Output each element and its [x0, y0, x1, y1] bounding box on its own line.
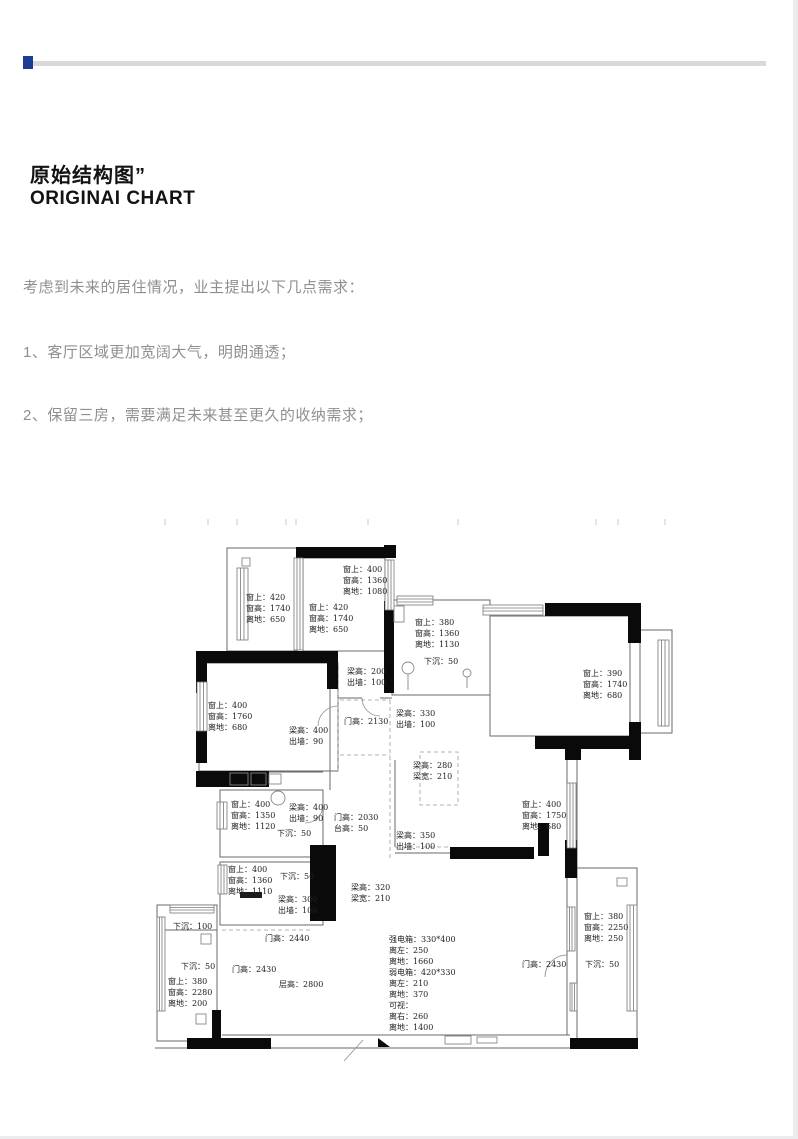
plan-annotation-line: 梁高：200 — [347, 666, 386, 677]
plan-annotation-line: 离地：1080 — [343, 586, 387, 597]
plan-annotation: 梁高：330出墙：100 — [396, 708, 435, 730]
plan-annotation-line: 梁高：400 — [289, 802, 328, 813]
plan-annotation-line: 离地：680 — [583, 690, 627, 701]
plan-annotation: 窗上：390窗高：1740离地：680 — [583, 668, 627, 701]
intro-lead-text: 考虑到未来的居住情况，业主提出以下几点需求： — [23, 276, 364, 297]
plan-annotation-line: 窗上：390 — [583, 668, 627, 679]
plan-annotation-line: 下沉：50 — [277, 828, 311, 839]
plan-annotation: 门高：2430 — [522, 959, 566, 970]
plan-annotation: 窗上：400窗高：1760离地：680 — [208, 700, 252, 733]
plan-annotation-line: 门高：2430 — [232, 964, 276, 975]
plan-annotation-line: 窗高：1360 — [415, 628, 459, 639]
accent-square — [23, 56, 33, 69]
plan-annotation: 下沉：100 — [173, 921, 212, 932]
plan-annotation-line: 出墙：90 — [289, 813, 328, 824]
plan-annotation-line: 窗高：1740 — [309, 613, 353, 624]
requirement-item-2: 2、保留三房，需要满足未来甚至更久的收纳需求； — [23, 404, 373, 425]
plan-annotation-line: 窗上：400 — [522, 799, 566, 810]
plan-annotation: 梁高：280梁宽：210 — [413, 760, 452, 782]
plan-annotation-line: 出墙：90 — [289, 736, 328, 747]
plan-annotation-line: 离右：260 — [389, 1011, 456, 1022]
plan-annotation-line: 下沉：50 — [585, 959, 619, 970]
plan-annotation-line: 窗上：420 — [309, 602, 353, 613]
plan-annotation-line: 窗高：1360 — [228, 875, 272, 886]
plan-annotation-line: 下沉：50 — [280, 871, 314, 882]
plan-annotation-line: 离地：650 — [309, 624, 353, 635]
plan-annotation-line: 离地：1120 — [231, 821, 275, 832]
plan-annotation-line: 窗高：2280 — [168, 987, 212, 998]
plan-annotation-line: 梁高：320 — [351, 882, 390, 893]
plan-annotation: 梁高：400出墙：90 — [289, 802, 328, 824]
header-divider-line — [33, 61, 766, 66]
plan-annotation-line: 梁高：280 — [413, 760, 452, 771]
plan-annotation-line: 离地：1130 — [415, 639, 459, 650]
plan-annotation: 窗上：420窗高：1740离地：650 — [246, 592, 290, 625]
plan-annotation-line: 窗高：1740 — [583, 679, 627, 690]
plan-annotation-line: 离地：680 — [522, 821, 566, 832]
plan-annotation: 梁高：320梁宽：210 — [351, 882, 390, 904]
plan-annotation-line: 窗上：380 — [584, 911, 628, 922]
plan-annotation: 门高：2440 — [265, 933, 309, 944]
plan-annotation-line: 门高：2440 — [265, 933, 309, 944]
plan-annotation: 门高：2130 — [344, 716, 388, 727]
plan-annotation-line: 出墙：100 — [396, 719, 435, 730]
plan-annotation-line: 离左：250 — [389, 945, 456, 956]
plan-annotation-line: 梁高：400 — [289, 725, 328, 736]
plan-annotation-line: 门高：2430 — [522, 959, 566, 970]
plan-annotation-line: 窗上：380 — [415, 617, 459, 628]
plan-annotation-line: 梁宽：210 — [413, 771, 452, 782]
plan-annotation-line: 下沉：50 — [424, 656, 458, 667]
plan-annotation-line: 窗上：400 — [343, 564, 387, 575]
plan-annotation-line: 离地：650 — [246, 614, 290, 625]
plan-annotation-line: 门高：2130 — [344, 716, 388, 727]
page-title-chinese: 原始结构图” — [30, 159, 146, 188]
article-page: 原始结构图” ORIGINAI CHART 考虑到未来的居住情况，业主提出以下几… — [0, 0, 798, 1139]
plan-annotation: 窗上：380窗高：1360离地：1130 — [415, 617, 459, 650]
requirement-item-1: 1、客厅区域更加宽阔大气，明朗通透； — [23, 341, 295, 362]
plan-annotation: 窗上：420窗高：1740离地：650 — [309, 602, 353, 635]
plan-annotation: 强电箱：330*400离左：250离地：1660弱电箱：420*330离左：21… — [389, 934, 456, 1033]
plan-annotation: 层高：2800 — [279, 979, 323, 990]
plan-annotation-line: 出墙：100 — [278, 905, 317, 916]
plan-annotation-line: 离左：210 — [389, 978, 456, 989]
plan-annotation: 梁高：400出墙：90 — [289, 725, 328, 747]
plan-annotation-line: 强电箱：330*400 — [389, 934, 456, 945]
plan-annotation: 窗上：400窗高：1360离地：1080 — [343, 564, 387, 597]
plan-annotation: 梁高：200出墙：100 — [347, 666, 386, 688]
plan-annotation-line: 离地：370 — [389, 989, 456, 1000]
floorplan-figure: 窗上：420窗高：1740离地：650窗上：400窗高：1360离地：1080窗… — [140, 510, 700, 1070]
plan-annotation-line: 梁高：300 — [278, 894, 317, 905]
plan-annotation: 窗上：400窗高：1360离地：1110 — [228, 864, 272, 897]
plan-annotation: 门高：2030台高：50 — [334, 812, 378, 834]
plan-annotation-line: 梁宽：210 — [351, 893, 390, 904]
plan-annotation-line: 窗高：2250 — [584, 922, 628, 933]
plan-annotation-line: 下沉：100 — [173, 921, 212, 932]
plan-annotation: 窗上：400窗高：1350离地：1120 — [231, 799, 275, 832]
plan-annotation-line: 可视： — [389, 1000, 456, 1011]
plan-annotation-line: 层高：2800 — [279, 979, 323, 990]
plan-annotation-line: 窗高：1350 — [231, 810, 275, 821]
plan-annotation-line: 门高：2030 — [334, 812, 378, 823]
plan-annotation-line: 梁高：330 — [396, 708, 435, 719]
plan-annotation-line: 台高：50 — [334, 823, 378, 834]
plan-annotation-line: 离地：1110 — [228, 886, 272, 897]
plan-annotation: 门高：2430 — [232, 964, 276, 975]
plan-annotation-line: 窗上：400 — [208, 700, 252, 711]
plan-annotation-line: 窗高：1750 — [522, 810, 566, 821]
plan-annotation-line: 弱电箱：420*330 — [389, 967, 456, 978]
plan-annotation-line: 窗上：420 — [246, 592, 290, 603]
plan-annotation: 下沉：50 — [181, 961, 215, 972]
plan-annotation-line: 窗高：1760 — [208, 711, 252, 722]
plan-annotation-line: 窗高：1740 — [246, 603, 290, 614]
plan-annotation: 梁高：300出墙：100 — [278, 894, 317, 916]
floorplan-annotations: 窗上：420窗高：1740离地：650窗上：400窗高：1360离地：1080窗… — [140, 510, 700, 1070]
plan-annotation: 窗上：380窗高：2280离地：200 — [168, 976, 212, 1009]
plan-annotation: 下沉：50 — [277, 828, 311, 839]
plan-annotation-line: 窗上：400 — [228, 864, 272, 875]
page-right-edge — [793, 0, 798, 1139]
plan-annotation-line: 窗上：380 — [168, 976, 212, 987]
plan-annotation: 窗上：380窗高：2250离地：250 — [584, 911, 628, 944]
plan-annotation: 窗上：400窗高：1750离地：680 — [522, 799, 566, 832]
plan-annotation-line: 离地：1660 — [389, 956, 456, 967]
plan-annotation-line: 窗高：1360 — [343, 575, 387, 586]
plan-annotation-line: 出墙：100 — [347, 677, 386, 688]
plan-annotation-line: 离地：250 — [584, 933, 628, 944]
plan-annotation: 下沉：50 — [424, 656, 458, 667]
plan-annotation-line: 出墙：100 — [396, 841, 435, 852]
plan-annotation-line: 离地：1400 — [389, 1022, 456, 1033]
plan-annotation-line: 离地：200 — [168, 998, 212, 1009]
plan-annotation: 下沉：50 — [585, 959, 619, 970]
plan-annotation: 梁高：350出墙：100 — [396, 830, 435, 852]
plan-annotation-line: 窗上：400 — [231, 799, 275, 810]
plan-annotation: 下沉：50 — [280, 871, 314, 882]
page-title-english: ORIGINAI CHART — [30, 188, 195, 210]
plan-annotation-line: 下沉：50 — [181, 961, 215, 972]
plan-annotation-line: 离地：680 — [208, 722, 252, 733]
plan-annotation-line: 梁高：350 — [396, 830, 435, 841]
